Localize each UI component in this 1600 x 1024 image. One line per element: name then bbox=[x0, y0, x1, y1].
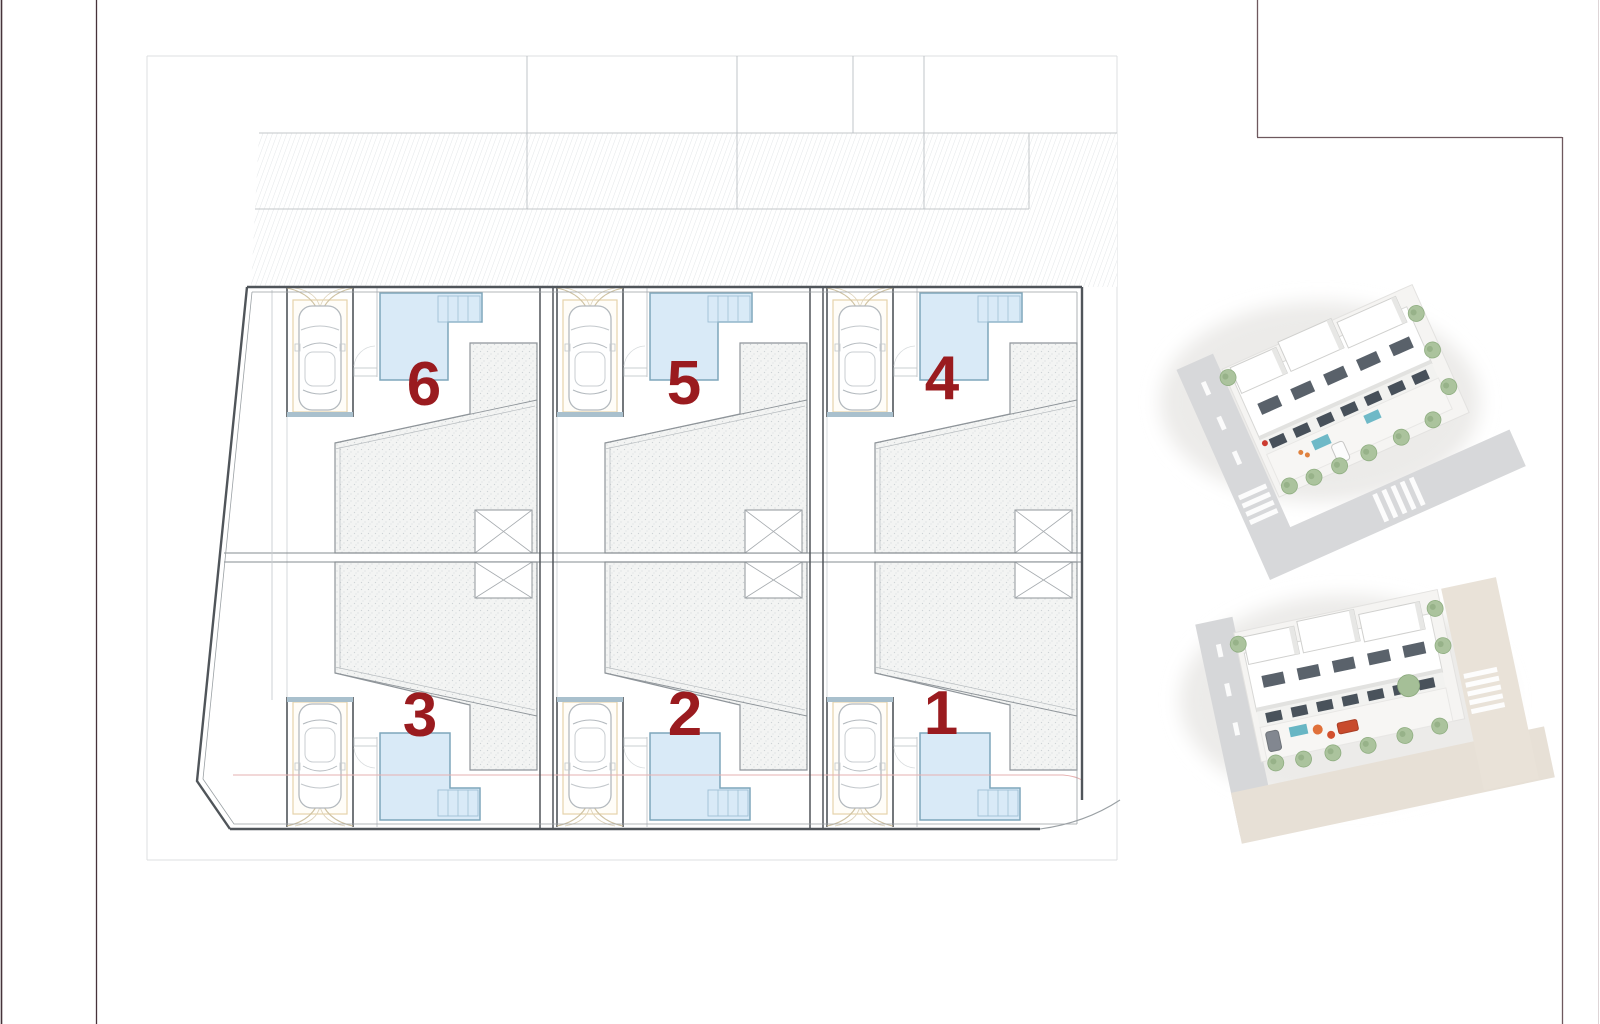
unit-label-6: 6 bbox=[407, 354, 441, 416]
unit-label-4: 4 bbox=[925, 348, 959, 410]
unit-label-2: 2 bbox=[668, 684, 702, 746]
aerial-render-bottom bbox=[1180, 558, 1555, 844]
aerial-render-top bbox=[1160, 256, 1526, 580]
sidewalk-hatch-bands bbox=[251, 56, 1117, 287]
site-plan-page: 6 5 4 3 2 1 bbox=[0, 0, 1600, 1024]
site-plan-drawing bbox=[0, 0, 1600, 1024]
unit-label-1: 1 bbox=[924, 683, 958, 745]
unit-label-3: 3 bbox=[403, 685, 437, 747]
unit-label-5: 5 bbox=[667, 353, 701, 415]
